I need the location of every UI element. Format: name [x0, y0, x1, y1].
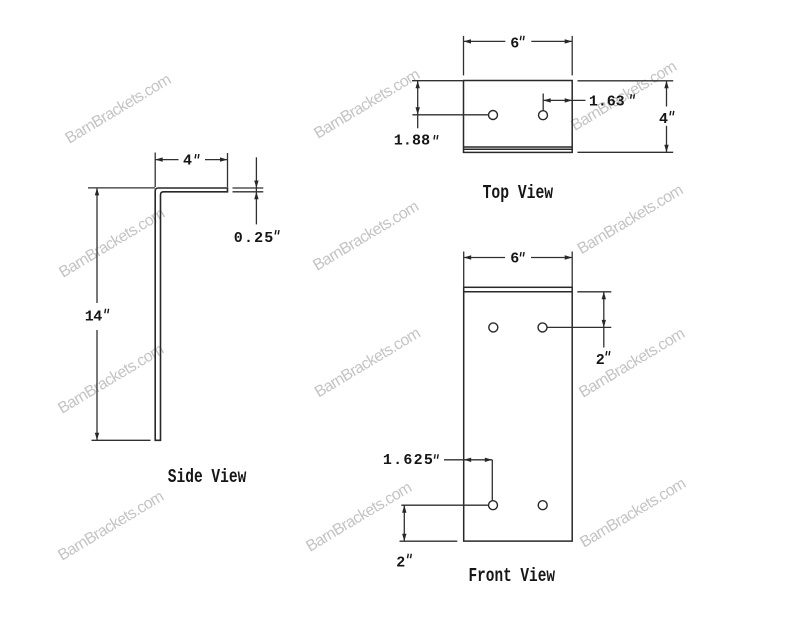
- svg-text:BarnBrackets.com: BarnBrackets.com: [577, 475, 689, 551]
- svg-text:BarnBrackets.com: BarnBrackets.com: [576, 325, 688, 401]
- svg-text:Front View: Front View: [469, 565, 556, 587]
- svg-text:BarnBrackets.com: BarnBrackets.com: [56, 205, 168, 281]
- svg-text:6: 6: [510, 251, 519, 268]
- svg-text:BarnBrackets.com: BarnBrackets.com: [55, 341, 167, 417]
- svg-text:2: 2: [396, 554, 405, 571]
- svg-text:BarnBrackets.com: BarnBrackets.com: [303, 479, 415, 555]
- svg-text:2: 2: [596, 352, 605, 369]
- svg-text:BarnBrackets.com: BarnBrackets.com: [312, 325, 424, 401]
- svg-text:BarnBrackets.com: BarnBrackets.com: [575, 182, 687, 258]
- svg-text:14: 14: [85, 308, 103, 325]
- svg-text:1.625: 1.625: [383, 452, 433, 469]
- svg-text:BarnBrackets.com: BarnBrackets.com: [63, 71, 175, 147]
- svg-text:BarnBrackets.com: BarnBrackets.com: [55, 488, 167, 564]
- svg-text:Side View: Side View: [168, 466, 247, 488]
- svg-text:1.88: 1.88: [394, 133, 431, 150]
- svg-text:4: 4: [659, 111, 668, 128]
- svg-text:1.63: 1.63: [589, 94, 625, 111]
- svg-text:BarnBrackets.com: BarnBrackets.com: [311, 66, 423, 142]
- svg-text:0.25: 0.25: [234, 230, 273, 247]
- svg-text:Top View: Top View: [483, 182, 554, 204]
- svg-text:4: 4: [183, 153, 192, 170]
- svg-text:BarnBrackets.com: BarnBrackets.com: [310, 198, 422, 274]
- svg-text:6: 6: [510, 35, 519, 52]
